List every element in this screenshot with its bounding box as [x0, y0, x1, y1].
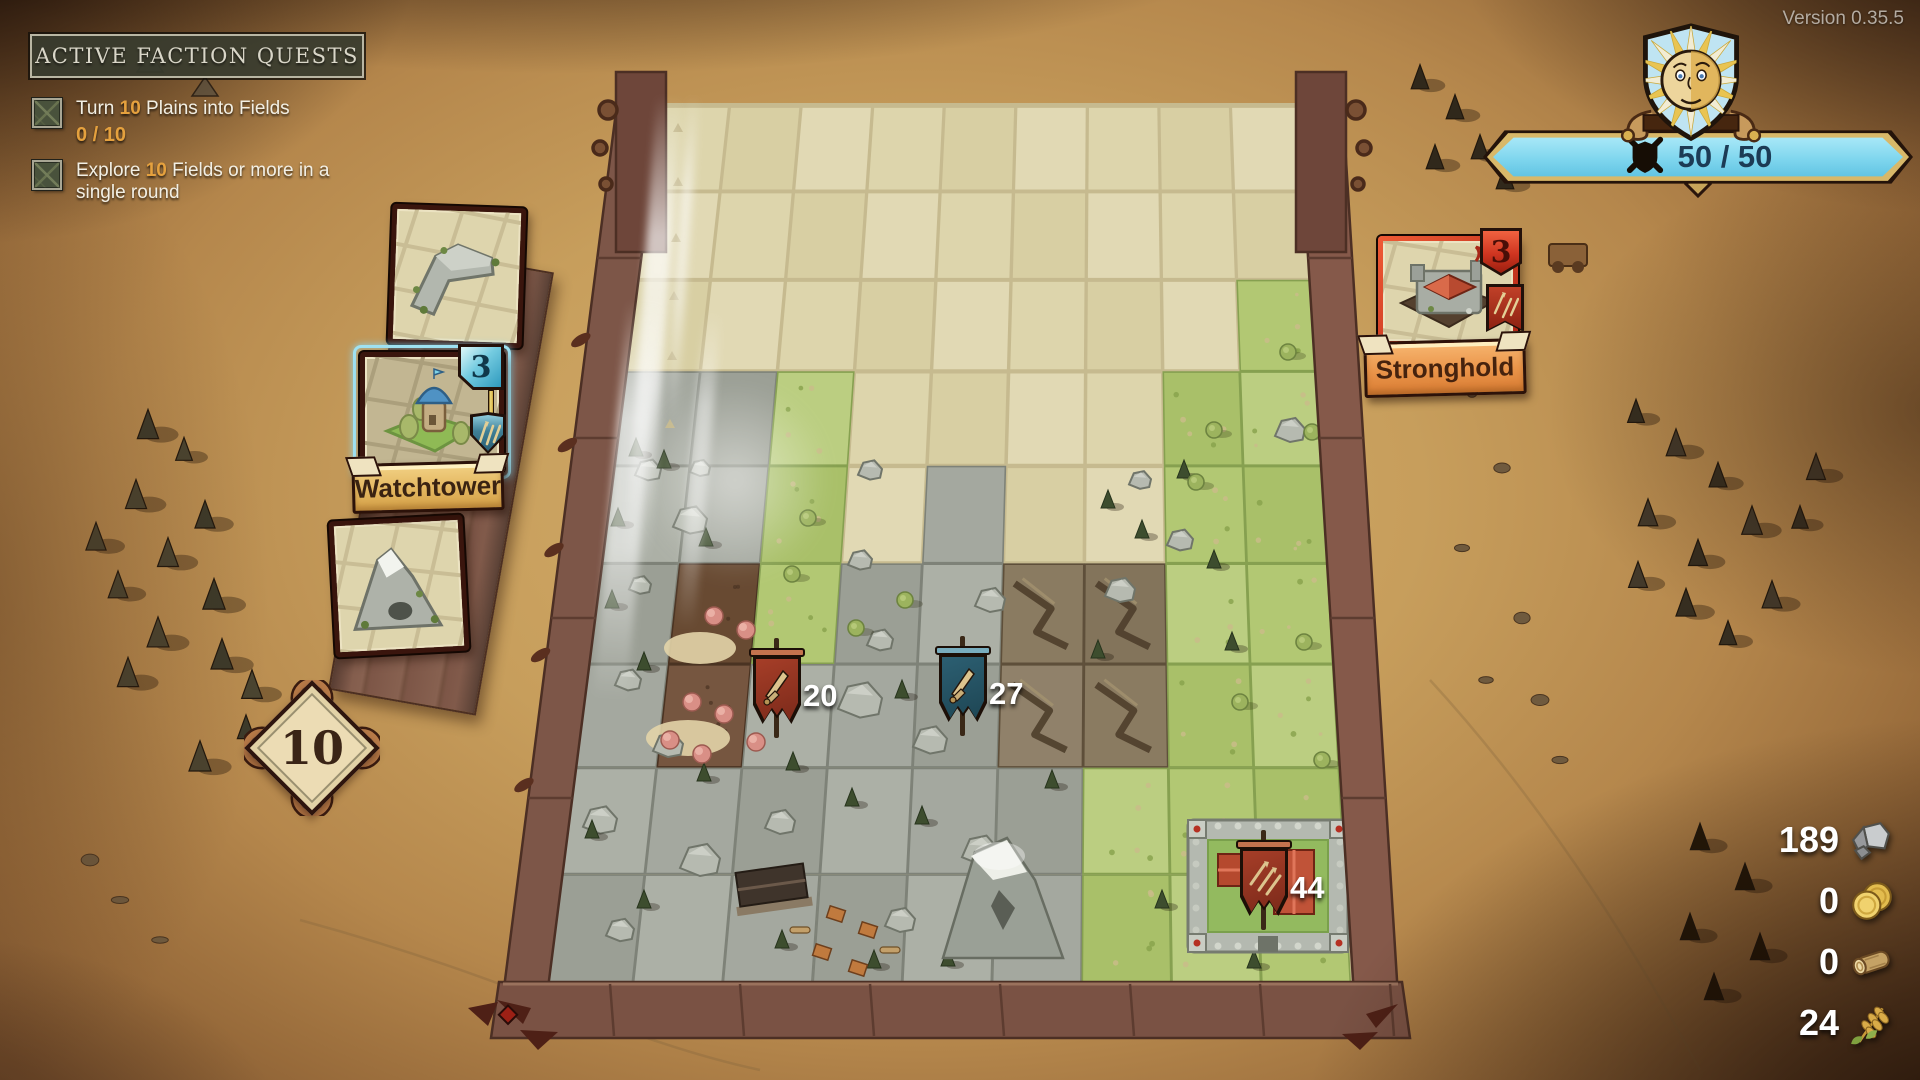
wall-corner-art [393, 209, 521, 343]
army-count: 44 [1290, 870, 1324, 906]
gold-icon [1849, 878, 1895, 924]
arrows-icon [1245, 854, 1283, 898]
resource-value: 0 [1819, 941, 1839, 983]
quest-checkbox-icon[interactable] [32, 98, 62, 128]
watchtower-nameplate: Watchtower [351, 460, 504, 514]
quest-panel-header: ACTIVE FACTION QUESTS [30, 34, 364, 78]
card-wall-corner[interactable] [388, 204, 527, 349]
resource-value: 0 [1819, 880, 1839, 922]
version-label: Version 0.35.5 [1783, 8, 1904, 30]
resource-wood: 0 [1819, 939, 1895, 985]
game-screen: 202744 ACTIVE FACTION QUESTS Turn 10 Pla… [0, 0, 1920, 1080]
cart [1549, 244, 1587, 273]
army-count: 27 [989, 676, 1023, 712]
sword-icon [758, 662, 796, 706]
sword-icon [944, 660, 982, 704]
wood-icon [1849, 939, 1895, 985]
army-count: 20 [803, 678, 837, 714]
sun-face [1662, 51, 1720, 111]
resource-value: 24 [1799, 1002, 1839, 1044]
wheat-icon [1849, 1000, 1895, 1046]
deck-counter[interactable]: 10 [244, 680, 380, 816]
quest-checkbox-icon[interactable] [32, 160, 62, 190]
resource-gold: 0 [1819, 878, 1895, 924]
deck-count: 10 [244, 680, 380, 816]
quest-text: Turn 10 Plains into Fields [76, 98, 290, 120]
resource-wheat: 24 [1799, 1000, 1895, 1046]
banner-bar [935, 646, 991, 655]
quest-progress: 0 / 10 [76, 124, 290, 147]
stone-icon [1849, 817, 1895, 863]
quest-text: Explore 10 Fields or more in a single ro… [76, 160, 372, 204]
card-mountain[interactable] [329, 515, 470, 658]
banner-bar [749, 648, 805, 657]
sun-faction-emblem [1618, 22, 1764, 150]
banner-bar [1236, 840, 1292, 849]
resource-value: 189 [1779, 819, 1839, 861]
resource-stone: 189 [1779, 817, 1895, 863]
mountain-card-art [334, 520, 464, 652]
quest-item: Explore 10 Fields or more in a single ro… [32, 160, 372, 204]
quest-item: Turn 10 Plains into Fields0 / 10 [32, 98, 290, 147]
stronghold-nameplate: Stronghold [1363, 338, 1526, 398]
